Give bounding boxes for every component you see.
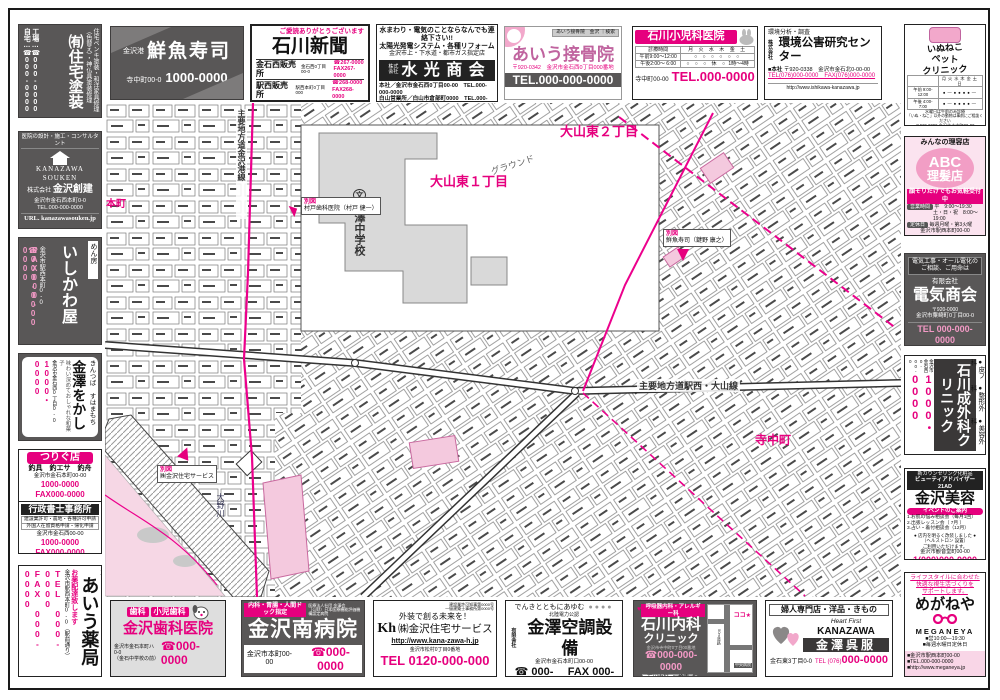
school-annex [471, 257, 507, 285]
ad-menbou-ishikawaya: めん房 いしかわ屋 金沢市駅西本町0-0 ☎000-0000 FAX000-00… [18, 237, 102, 345]
ad-ishikawa-naika: ♥ 呼吸器内科・アレルギー科 石川内科 クリニック 金沢市寺中町0丁目00番地 … [633, 600, 757, 677]
hours-value: 土・日・祝 8:00～19:00 [907, 210, 983, 222]
district-label: 大山東２丁目 [560, 121, 638, 140]
ad-ishikawa-shinbun: ご愛読ありがとうございます 石川新聞 金石西販売所 金石西0丁目00-0 ☎26… [250, 24, 370, 102]
magnifier-icon [693, 675, 700, 677]
ad-kanazawa-jutaku-service: 建設業許可知事第0000号 一級建築士事務所第0000号 外装で創る未来を！ K… [373, 600, 497, 677]
ad-title: 環境公害研究センター [779, 37, 878, 65]
schedule-row-label: 午後2:00～ 6:00 [636, 61, 681, 68]
ad-aiu-yakkyoku: FAX 000-0000 TEL 000-0000 金沢市駅西本町0-0（駅前通… [18, 565, 102, 677]
ad-address: 金沢市金石本町00-00 [21, 473, 99, 480]
ad-branch: 金石西販売所 [256, 60, 299, 79]
ad-phone: ℡.000-000-0000 [907, 234, 983, 236]
house-icon [50, 151, 70, 165]
callout-arrow-icon [677, 249, 689, 261]
ad-department: ●美容外科 [976, 418, 984, 451]
ad-catch: 金沢市上・下水道・都市ガス指定店 [379, 51, 495, 58]
pond [173, 555, 197, 567]
ad-url: URL. kanazawasouken.jp [21, 213, 99, 223]
ad-services: 住宅ペンキ塗装・和洋家具修理（色替え）・神仏具塗装修理 [84, 28, 98, 114]
schedule-marks: ●—●●●●— [938, 98, 982, 109]
ad-title: 理髪店 [916, 170, 974, 182]
ad-phone: ☎000-000-0000 [637, 650, 705, 674]
ad-address: 金石西0丁目00-0 [301, 64, 332, 75]
ad-title: 行政書士事務所 [21, 504, 99, 515]
ad-phone: 000-0000 [841, 654, 888, 667]
ad-services: 外国人在留資格申請・帰化申請 [21, 524, 99, 531]
ad-catch: 味わい深めておしゃれな和菓子 [57, 360, 70, 434]
event-header: イベントのご案内 [907, 508, 983, 515]
ad-title: 金沢創建 [53, 184, 93, 195]
ad-prefix: 有限会社 [908, 278, 982, 286]
mini-map-here: ココ★ [734, 613, 751, 620]
ad-sengyo-sushi: 金沢港 鮮魚寿司 寺中町00-0 1000-0000 [110, 26, 244, 100]
schedule-header: 診療時間 [636, 47, 681, 54]
holiday-label: 定休日 [907, 222, 928, 228]
ad-title: 金沢歯科医院 [114, 620, 222, 638]
ad-tsurigu-gyousei: つりぐ店 釣具 釣エサ 釣舟 金沢市金石本町00-00 1000-0000 FA… [18, 449, 102, 554]
ad-url: http://www.kana-zawa-h.jp [376, 638, 494, 646]
river-label: 大野川 [215, 493, 226, 533]
dog-icon [192, 604, 210, 620]
schedule-days: 月火水木金土日 [938, 76, 982, 87]
road-label: 主要地方道金沢港線 [236, 109, 247, 219]
ad-title: 石川成外科クリニック [934, 359, 976, 451]
ad-note: （公財）日本医療機能評価機構認定病院 [308, 608, 362, 617]
mini-map-road [724, 605, 730, 672]
ad-phone: ☎000-0000 [161, 639, 222, 668]
ad-items: きんつば すはまもち [87, 360, 95, 434]
junction-icon [572, 388, 579, 395]
dept-tag: 小児歯科 [151, 607, 189, 617]
mini-map-road [730, 645, 752, 650]
ad-address: 寺中町00-00 [635, 77, 668, 84]
ad-phone: ☎000-0000 [299, 645, 362, 674]
ad-branch: 駅西販売所 [256, 81, 293, 100]
ad-kanazawa-souken: 医院の設計・施工・コンサルタント KANAZAWA SOUKEN 株式会社 金沢… [18, 131, 102, 229]
ad-title: いしかわ屋 [58, 244, 77, 340]
ad-band: 婦人専門店・洋品・きもの [769, 604, 889, 616]
map-area: 大山東２丁目 大山東１丁目 寺中町 本町 文金澤中学校 グラウンド 主要地方道駅… [105, 103, 901, 597]
rabbit-icon [737, 29, 755, 45]
event-item: 1.お肌の悩み相談会（毎月1回） [907, 515, 983, 521]
ad-catch: 医院の設計・施工・コンサルタント [21, 134, 99, 149]
ad-meganeya: ライフスタイルに合わせた 快適な視生活づくりを サポートします。 めがねや ME… [904, 572, 986, 677]
ad-catch: 外装で創る未来を！ [376, 612, 494, 622]
ad-prefix: 会社 [388, 70, 398, 75]
ad-title: クリニック [637, 634, 705, 645]
ad-address: 金沢市金石西0-00-0 [908, 359, 934, 374]
holiday-value: 毎週月曜・第3火曜 [929, 222, 972, 228]
ad-kanazawa-wokashi: 1000・0000 金沢市金石西0丁目0-0 味わい深めておしゃれな和菓子 金澤… [18, 353, 102, 441]
map-callout: 別図 ㈱金沢住宅サービス [157, 465, 217, 483]
schedule-note: 1時～4時 [728, 61, 749, 67]
ad-prefix: 株式会社 [27, 188, 51, 194]
ad-catch: 快適な視生活づくりを [907, 582, 983, 589]
hours-value: 平 9:00～19:30 [934, 204, 971, 210]
ad-address: 金沢市本町00-00 [244, 651, 295, 668]
ad-address: 金石東3丁目0-0 [770, 659, 812, 666]
mini-map-road-label: 50m道路 [716, 629, 721, 665]
ad-title: あいう接骨院 [505, 45, 621, 65]
ad-address: 〒920-0342 金沢市金石西0丁目000番地 [505, 65, 621, 72]
ad-title: 石川小児科医院 [635, 30, 737, 43]
wave-decoration [111, 27, 171, 53]
callout-text: 村戸歯科医院（村戸 健一） [304, 206, 378, 212]
district-label: 寺中町 [755, 431, 791, 448]
ad-title: 金澤空調設備 [521, 618, 619, 659]
ad-ishikawa-shonika: 石川小児科医院 診療時間月 火 水 木 金 土 午前9:00～12:00○ ○ … [632, 26, 758, 100]
pet-logo-icon [929, 27, 961, 43]
ad-brand: KANAZAWA [817, 626, 875, 637]
ad-band: ビューティアドバイザー 21AD [907, 477, 983, 490]
ad-inuneko-pet-clinic: いぬねこ ペット クリニック 月火水木金土日 午前 9:00-12:00●—●●… [904, 24, 986, 126]
ad-phone: TEL 0120-000-000 [376, 653, 494, 669]
ad-phone: 1(000)000-0000 [907, 555, 983, 560]
ad-brand: Heart First [831, 618, 861, 625]
ad-kanazawa-biyou: 新カウンセリング化粧品 ビューティアドバイザー 21AD 金沢美容 イベントのご… [904, 468, 986, 560]
ad-catch: お薬配達致します [69, 569, 77, 673]
ad-address: 金沢市金石西本町0-0 [21, 198, 99, 205]
glasses-icon [930, 614, 960, 624]
ad-phone: ☎268-0000 [332, 80, 364, 87]
ad-title: 石川新聞 [256, 36, 364, 59]
ad-title: 金沢美容 [907, 490, 983, 508]
map-callout: 別図 鮮魚寿司（鍵野 康之） [663, 229, 731, 247]
schedule-row-label: 午後 4:00- 7:00 [908, 98, 939, 109]
ad-phone: TEL 000-0000 [42, 569, 62, 673]
ad-abc-barber: みんなの理容店 ABC 理髪店 顔そりだけでもお気軽受付中 営業時間 平 9:0… [904, 136, 986, 236]
ad-title: 水 光 商 会 [401, 61, 485, 80]
ad-title: 電気商会 [908, 286, 982, 305]
mini-map: ココ★ 中央病院 50m道路 [707, 604, 753, 673]
abc-circle-logo: ABC 理髪店 [916, 148, 974, 188]
schedule-table: 診療時間月 火 水 木 金 土 午前9:00～12:00○ ○ ○ ○ ○ ○ … [635, 46, 755, 68]
schedule-marks: ○ ○ ○ ○ ○ ○ [681, 54, 755, 61]
ad-phone: TEL(076)000-0000 FAX(076)000-0000 [768, 73, 878, 80]
ad-address: 金沢市金石本町口00-00 [509, 659, 619, 666]
dots-decoration: ●●●● [589, 604, 614, 612]
ad-thanks: ご愛読ありがとうございます [256, 28, 364, 36]
ad-services: 建設業許可・農地・各種許可申請 [21, 516, 99, 524]
ad-title: 金澤をかし [70, 360, 87, 434]
junction-icon [352, 360, 359, 367]
ad-department: ●整形外科 [976, 385, 984, 418]
ad-denki-shokai: 電気工事・オール電化の ご相談、ご用命は 有限会社 電気商会 〒920-0000… [904, 253, 986, 346]
ad-phone: TEL.000-000-0000 [505, 73, 621, 87]
hours-label: 営業時間 [907, 204, 933, 210]
ad-fax: FAX000-0000 [21, 490, 99, 500]
ad-prefix: 会社 [509, 639, 519, 649]
ad-phone: ☎267-0000 [334, 60, 364, 67]
ad-phone: 1000・0000 [908, 374, 934, 451]
ad-fax: FAX000-0000 [20, 246, 39, 338]
ad-phone: TEL.000-0000 [672, 69, 755, 85]
schedule-days: 月 火 水 木 金 土 [681, 47, 755, 54]
ad-address: 白山営業所／白山市倉部町0000 TEL.000-000-0000 [379, 96, 495, 102]
mini-map-hospital: 中央病院 [734, 663, 752, 668]
ad-kankyo-center: 環境分析・調査 株式 会社 環境公害研究センター ■本社 〒920-0338 金… [764, 26, 882, 100]
ad-band: 顔そりだけでもお気軽受付中 [907, 189, 983, 203]
ad-aiu-sekkotsuin: あいう接骨院 金沢 ｜検索 あいう接骨院 〒920-0342 金沢市金石西0丁目… [504, 26, 622, 100]
schedule-table: 月火水木金土日 午前 9:00-12:00●—●●●●— 午後 4:00- 7:… [907, 75, 983, 109]
map-callout: 別図 村戸歯科医院（村戸 健一） [301, 197, 381, 215]
ad-title: ABC [916, 155, 974, 170]
ad-phone: 1000-0000 [21, 480, 99, 490]
ad-address: 〒920-0338 金沢市金石北0-00-00 [784, 67, 870, 73]
callout-text: 鮮魚寿司（鍵野 康之） [666, 238, 728, 244]
circle-decoration [507, 29, 521, 43]
ad-title: めがねや [907, 596, 983, 614]
mini-map-road [708, 619, 724, 624]
ad-url: ■http://www.meganeya.jp [907, 665, 983, 671]
ad-latin-name: MEGANEYA [907, 627, 983, 636]
schedule-marks: ●—●●●●— [938, 87, 982, 98]
ad-fax: FAX 000-0000 [22, 569, 42, 673]
ad-fax: FAX000-0000 [21, 548, 99, 554]
highlight-building [263, 475, 309, 579]
ad-fax: FAX268-0000 [332, 87, 364, 100]
ad-kanazawa-gofuku: 婦人専門店・洋品・きもの Heart First KANAZAWA 金澤呉服 金… [765, 600, 893, 677]
ad-address: 金沢市駅西本町0-0（駅前通り） [63, 569, 70, 673]
ad-phone: TEL.000-000-0000 [21, 205, 99, 212]
ad-catch: 水まわり・電気のことならなんでも連絡下さい!! [379, 27, 495, 43]
ad-jutaku-tosou: 自宅…☎000-0000 工場…☎000-0000 ㈲住宅塗装 住宅ペンキ塗装・… [18, 24, 102, 118]
ad-address: 寺中町00-0 [126, 77, 161, 85]
ad-address: 〒920-0000 金沢市寺中町00-00 [907, 123, 983, 126]
road-label: 主要地方道駅西・大山線 [637, 379, 740, 392]
ad-services: （調剤・漢方薬・医療機器・処方せん承ります） [99, 569, 102, 673]
ad-fax: FAX 000-0000 [563, 666, 619, 677]
schedule-row-label: 午前9:00～12:00 [636, 54, 681, 61]
holiday-value: ■毎週水曜日定休日 [907, 642, 983, 648]
kh-logo: Kh [377, 621, 396, 638]
ad-phone: TEL 000-000-0000 [908, 322, 982, 346]
ad-band: 内科・胃腸・人間ドック指定 [244, 603, 306, 617]
ad-phone: 工場…☎000-0000 [30, 28, 38, 114]
search-tab: あいう接骨院 金沢 ｜検索 [552, 29, 619, 37]
ad-phone: 1000-0000 [21, 538, 99, 548]
ad-title: ㈲住宅塗装 [39, 28, 84, 114]
ad-kanazawa-minami-hospital: 内科・胃腸・人間ドック指定 医療法人社団 金澤会 （公財）日本医療機能評価機構認… [241, 600, 365, 677]
ad-phone: ☎ 000-0000 [509, 666, 559, 677]
ad-fax: FAX267-0000 [334, 66, 364, 79]
ad-address: 金沢市金石西00-00 [21, 531, 99, 538]
ad-suiko-shokai: 水まわり・電気のことならなんでも連絡下さい!! 太陽光発電システム・各種リフォー… [376, 24, 498, 102]
ad-catch: ライフスタイルに合わせた [907, 575, 983, 582]
ad-hq-label: ■本社 [768, 67, 782, 73]
ad-seikei-clinic: 金沢市金石西0-00-0 1000・0000 石川成外科クリニック ●皮フ科 ●… [904, 355, 986, 455]
schedule-marks: ○ ○ ○ 休 ○ [686, 61, 727, 67]
ad-department: ●皮フ科 [976, 359, 984, 385]
dept-tag: 歯科 [127, 607, 149, 617]
ad-title: 金沢南病院 [244, 617, 362, 642]
ad-note: （金石中学校の前） [114, 656, 158, 662]
district-label: 本町 [106, 195, 126, 210]
ad-kanazawa-kuchou: でんきとともにあゆむ ●●●● 北陸電力公認 有限 会社 金澤空調設備 金沢市金… [505, 600, 623, 677]
ad-address: 駅西本町0丁目000 [295, 85, 330, 96]
ad-phone: 1000・0000 [25, 360, 51, 434]
ad-tag: めん房 [88, 241, 98, 279]
ad-catch: ご相談、ご用命は [910, 266, 980, 273]
ad-title: 石川内科 [637, 617, 705, 634]
ad-title: つりぐ店 [27, 452, 93, 464]
ad-address: 金沢市粟崎町0丁目00-0 [908, 313, 982, 320]
ad-en-name: KANAZAWA SOUKEN [21, 165, 99, 182]
hearts-logo-icon [769, 622, 803, 648]
ad-phone: 自宅…☎000-0000 [22, 28, 30, 114]
ad-catch: みんなの理容店 [907, 139, 983, 147]
ad-address: 本社／金沢市金石西0丁目00-00 TEL.000-000-0000 [379, 83, 495, 96]
ad-prefix: 会社 [768, 51, 777, 61]
callout-text: ㈱金沢住宅サービス [160, 474, 214, 480]
search-keyword: 石川内科 [642, 674, 674, 677]
search-button: 検索 [674, 674, 693, 677]
wave-decoration [183, 73, 243, 99]
ad-title: 金澤呉服 [803, 638, 889, 652]
ad-kanazawa-shika: 歯科 小児歯科 金沢歯科医院 金沢市金石本町ハ0-0 （金石中学校の前） ☎00… [110, 600, 226, 677]
ad-url: http://www.ishikawa-kanazawa.jp [768, 83, 878, 91]
ad-catch: サポートします。 [907, 589, 983, 596]
ad-phone-prefix: TEL (076) [815, 659, 841, 666]
ad-title: ㈱金沢住宅サービス [398, 623, 493, 636]
ad-address: 金沢市金石本町ハ0-0 [114, 644, 158, 656]
ad-title: あいう薬局 [78, 569, 100, 673]
event-item: 3.占い・着付相談会（12月） [907, 526, 983, 532]
map-page: 大山東２丁目 大山東１丁目 寺中町 本町 文金澤中学校 グラウンド 主要地方道駅… [0, 0, 1000, 700]
schedule-row-label: 午前 9:00-12:00 [908, 87, 939, 98]
pond [137, 527, 169, 543]
